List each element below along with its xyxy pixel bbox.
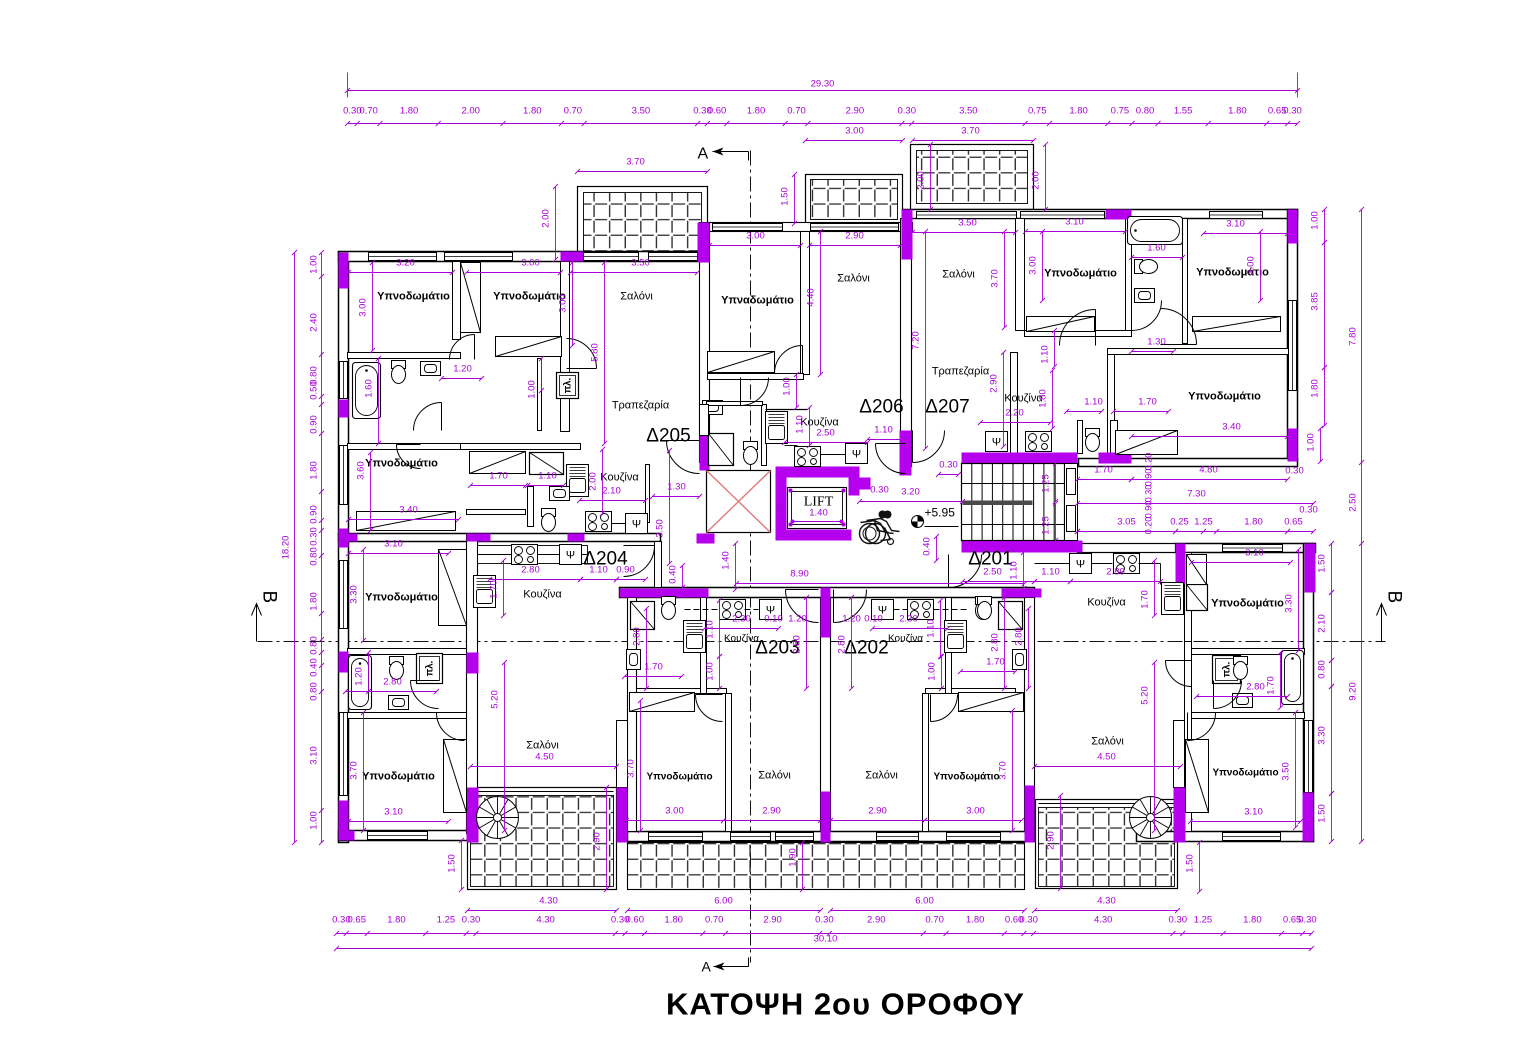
svg-text:0.90: 0.90 (1144, 469, 1154, 487)
svg-text:9.20: 9.20 (1348, 682, 1359, 701)
svg-text:0.60: 0.60 (626, 915, 645, 926)
svg-text:3.00: 3.00 (1246, 256, 1257, 275)
svg-text:7.30: 7.30 (1187, 489, 1206, 500)
svg-text:Κουζίνα: Κουζίνα (888, 633, 923, 645)
svg-text:3.10: 3.10 (309, 746, 320, 765)
svg-text:1.55: 1.55 (1174, 106, 1193, 117)
svg-text:1.40: 1.40 (809, 508, 828, 519)
svg-text:Σαλόνι: Σαλόνι (758, 770, 791, 782)
svg-text:2.80: 2.80 (837, 635, 848, 654)
svg-text:0.70: 0.70 (787, 106, 806, 117)
svg-text:+5.95: +5.95 (925, 506, 956, 520)
svg-text:4.50: 4.50 (1097, 752, 1116, 763)
svg-text:1.70: 1.70 (1094, 465, 1113, 476)
svg-text:8.90: 8.90 (790, 569, 809, 580)
svg-text:B: B (1384, 591, 1405, 604)
svg-text:1.70: 1.70 (1138, 397, 1157, 408)
svg-text:3.50: 3.50 (959, 106, 978, 117)
svg-text:A: A (698, 146, 709, 163)
svg-text:0.10: 0.10 (864, 614, 883, 625)
svg-text:5.20: 5.20 (1140, 686, 1151, 705)
svg-text:1.25: 1.25 (1041, 474, 1052, 493)
svg-text:0.65: 0.65 (1284, 517, 1303, 528)
svg-text:1.10: 1.10 (874, 425, 893, 436)
svg-text:1.50: 1.50 (780, 187, 791, 206)
svg-text:1.10: 1.10 (1041, 567, 1060, 578)
svg-text:2.50: 2.50 (983, 567, 1002, 578)
svg-text:2.00: 2.00 (588, 472, 599, 491)
svg-text:3.00: 3.00 (746, 231, 765, 242)
svg-text:Κουζίνα: Κουζίνα (523, 589, 562, 601)
svg-text:3.00: 3.00 (358, 298, 369, 317)
svg-text:Υπνοδωμάτιο: Υπνοδωμάτιο (362, 771, 435, 783)
svg-text:18.20: 18.20 (281, 536, 292, 560)
svg-text:0.30: 0.30 (462, 915, 481, 926)
svg-text:1.30: 1.30 (1147, 337, 1166, 348)
svg-text:0.90: 0.90 (309, 415, 320, 434)
svg-text:1.00: 1.00 (927, 662, 938, 681)
svg-text:0.80: 0.80 (309, 636, 320, 655)
svg-text:Ψ: Ψ (992, 437, 1001, 449)
svg-text:1.80: 1.80 (664, 915, 683, 926)
svg-text:2.20: 2.20 (1005, 408, 1024, 419)
svg-text:1.30: 1.30 (667, 482, 686, 493)
svg-text:3.50: 3.50 (632, 106, 651, 117)
svg-text:0.30: 0.30 (1019, 915, 1038, 926)
svg-text:1.10: 1.10 (538, 471, 557, 482)
svg-text:3.70: 3.70 (990, 269, 1001, 288)
svg-text:0.30: 0.30 (309, 527, 320, 546)
svg-text:3.30: 3.30 (349, 585, 360, 604)
svg-text:0.75: 0.75 (1028, 106, 1047, 117)
svg-text:3.00: 3.00 (558, 294, 569, 313)
svg-text:2.80: 2.80 (1014, 627, 1025, 646)
svg-text:Δ207: Δ207 (925, 397, 969, 418)
svg-text:1.10: 1.10 (1040, 345, 1051, 364)
svg-text:3.10: 3.10 (384, 807, 403, 818)
svg-text:0.90: 0.90 (1144, 501, 1154, 519)
svg-text:2.30: 2.30 (732, 614, 751, 625)
svg-text:Κουζίνα: Κουζίνα (600, 472, 639, 484)
svg-text:Σαλόνι: Σαλόνι (526, 740, 559, 752)
svg-text:1.50: 1.50 (1185, 854, 1196, 873)
svg-text:2.90: 2.90 (846, 106, 865, 117)
svg-text:ΚΑΤΟΨΗ 2ου ΟΡΟΦΟΥ: ΚΑΤΟΨΗ 2ου ΟΡΟΦΟΥ (666, 987, 1025, 1022)
svg-text:0.90: 0.90 (309, 505, 320, 524)
svg-text:5.20: 5.20 (490, 690, 501, 709)
svg-text:0.30: 0.30 (870, 485, 889, 496)
svg-text:Υπνοδωμάτιο: Υπνοδωμάτιο (1211, 598, 1284, 610)
svg-text:1.00: 1.00 (1306, 433, 1317, 452)
svg-text:Κουζίνα: Κουζίνα (1087, 597, 1126, 609)
svg-text:6.00: 6.00 (915, 896, 934, 907)
svg-text:3.05: 3.05 (1117, 517, 1136, 528)
svg-text:3.40: 3.40 (1222, 422, 1241, 433)
svg-text:4.80: 4.80 (1199, 465, 1218, 476)
svg-text:1.10: 1.10 (926, 619, 937, 638)
svg-text:0.75: 0.75 (1111, 106, 1130, 117)
svg-text:Σαλόνι: Σαλόνι (837, 273, 870, 285)
svg-text:4.30: 4.30 (539, 896, 558, 907)
svg-text:Υπναδωμάτιο: Υπναδωμάτιο (721, 295, 794, 307)
svg-text:7.20: 7.20 (911, 331, 922, 350)
svg-text:0.30: 0.30 (1285, 466, 1304, 477)
svg-text:2.00: 2.00 (1031, 171, 1042, 190)
svg-text:1.60: 1.60 (364, 379, 375, 398)
svg-text:Υπνοδωμάτιο: Υπνοδωμάτιο (493, 291, 566, 303)
svg-text:0.70: 0.70 (359, 106, 378, 117)
svg-text:1.25: 1.25 (1194, 915, 1213, 926)
svg-text:2.80: 2.80 (1246, 682, 1265, 693)
svg-text:Ψ: Ψ (566, 550, 575, 562)
svg-text:1.80: 1.80 (747, 106, 766, 117)
svg-text:2.90: 2.90 (763, 915, 782, 926)
svg-text:1.80: 1.80 (1243, 915, 1262, 926)
svg-text:3.10: 3.10 (384, 539, 403, 550)
svg-text:2.90: 2.90 (868, 806, 887, 817)
svg-text:0.20: 0.20 (1144, 517, 1154, 535)
svg-text:Σαλόνι: Σαλόνι (1091, 736, 1124, 748)
svg-text:2.90: 2.90 (845, 231, 864, 242)
svg-text:3.40: 3.40 (399, 505, 418, 516)
svg-text:2.10: 2.10 (1317, 614, 1328, 633)
svg-text:Υπνοδωμάτιο: Υπνοδωμάτιο (1212, 768, 1278, 779)
svg-text:29.30: 29.30 (811, 79, 835, 90)
svg-text:0.30: 0.30 (1298, 915, 1317, 926)
svg-text:1.00: 1.00 (1310, 211, 1321, 230)
svg-text:1.70: 1.70 (1266, 676, 1277, 695)
svg-text:0.80: 0.80 (309, 547, 320, 566)
svg-text:0.25: 0.25 (1170, 517, 1189, 528)
svg-text:0.80: 0.80 (1136, 106, 1155, 117)
svg-text:3.70: 3.70 (349, 761, 360, 780)
svg-text:1.70: 1.70 (986, 657, 1005, 668)
svg-text:Κουζίνα: Κουζίνα (724, 633, 759, 645)
svg-text:1.70: 1.70 (489, 580, 500, 599)
svg-text:3.00: 3.00 (966, 806, 985, 817)
svg-text:2.00: 2.00 (461, 106, 480, 117)
svg-text:πλ.: πλ. (563, 377, 574, 393)
svg-text:Δ205: Δ205 (646, 426, 690, 447)
svg-text:3.70: 3.70 (626, 759, 637, 778)
svg-text:πλ.: πλ. (1222, 661, 1233, 677)
svg-text:2.50: 2.50 (816, 428, 835, 439)
svg-text:0.40: 0.40 (668, 565, 679, 584)
svg-text:2.90: 2.90 (592, 832, 603, 851)
svg-text:0.70: 0.70 (925, 915, 944, 926)
svg-text:4.30: 4.30 (1097, 896, 1116, 907)
svg-text:Υπνοδωμάτιο: Υπνοδωμάτιο (933, 772, 999, 783)
svg-text:2.00: 2.00 (916, 171, 927, 190)
svg-text:B: B (259, 591, 280, 604)
svg-text:1.70: 1.70 (644, 662, 663, 673)
svg-text:0.30: 0.30 (897, 106, 916, 117)
svg-text:1.25: 1.25 (437, 915, 456, 926)
svg-text:3.10: 3.10 (1244, 807, 1263, 818)
svg-text:1.00: 1.00 (782, 377, 793, 396)
svg-text:πλ.: πλ. (425, 660, 436, 676)
svg-text:2.30: 2.30 (899, 614, 918, 625)
svg-text:6.00: 6.00 (714, 896, 733, 907)
svg-text:2.40: 2.40 (309, 313, 320, 332)
svg-text:0.80: 0.80 (309, 682, 320, 701)
svg-text:1.50: 1.50 (1317, 554, 1328, 573)
svg-text:0.30: 0.30 (1144, 485, 1154, 503)
svg-text:3.20: 3.20 (396, 258, 415, 269)
svg-text:1.80: 1.80 (966, 915, 985, 926)
svg-text:1.80: 1.80 (309, 461, 320, 480)
svg-text:Σαλόνι: Σαλόνι (865, 770, 898, 782)
svg-text:2.90: 2.90 (989, 374, 1000, 393)
svg-text:Ψ: Ψ (632, 519, 641, 531)
svg-text:1.10: 1.10 (1009, 561, 1020, 580)
svg-text:2.80: 2.80 (521, 565, 540, 576)
svg-text:3.70: 3.70 (961, 126, 980, 137)
svg-text:3.70: 3.70 (626, 157, 645, 168)
svg-text:1.40: 1.40 (721, 551, 732, 570)
svg-text:0.65: 0.65 (348, 915, 367, 926)
svg-text:1.80: 1.80 (523, 106, 542, 117)
svg-text:3.50: 3.50 (631, 258, 650, 269)
svg-text:Υπνοδωμάτιο: Υπνοδωμάτιο (1188, 391, 1261, 403)
svg-text:2.50: 2.50 (1348, 493, 1359, 512)
svg-text:1.20: 1.20 (354, 667, 365, 686)
svg-text:7.80: 7.80 (1348, 327, 1359, 346)
svg-text:1.10: 1.10 (775, 503, 786, 522)
svg-text:1.80: 1.80 (400, 106, 419, 117)
svg-text:Υπνοδωμάτιο: Υπνοδωμάτιο (365, 592, 438, 604)
svg-text:2.90: 2.90 (867, 915, 886, 926)
svg-text:1.00: 1.00 (527, 380, 538, 399)
svg-text:3.60: 3.60 (356, 461, 367, 480)
svg-text:1.25: 1.25 (1194, 517, 1213, 528)
svg-text:1.50: 1.50 (447, 854, 458, 873)
svg-text:1.10: 1.10 (705, 620, 716, 639)
svg-text:3.70: 3.70 (998, 761, 1009, 780)
svg-text:2.10: 2.10 (602, 486, 621, 497)
svg-text:1.10: 1.10 (1084, 397, 1103, 408)
svg-text:2.80: 2.80 (1106, 567, 1125, 578)
svg-text:2.80: 2.80 (990, 633, 1001, 652)
svg-text:A: A (702, 959, 712, 975)
svg-text:1.80: 1.80 (1244, 517, 1263, 528)
svg-text:1.20: 1.20 (453, 364, 472, 375)
svg-text:4.30: 4.30 (536, 915, 555, 926)
svg-text:Ψ: Ψ (852, 449, 861, 461)
svg-text:2.80: 2.80 (632, 627, 643, 646)
svg-text:2.80: 2.80 (383, 677, 402, 688)
svg-text:4.50: 4.50 (535, 752, 554, 763)
svg-text:Ψ: Ψ (1076, 559, 1085, 571)
svg-text:1.00: 1.00 (309, 811, 320, 830)
svg-text:1.50: 1.50 (1317, 804, 1328, 823)
svg-text:Δ206: Δ206 (859, 397, 903, 418)
svg-text:Υπνοδωμάτιο: Υπνοδωμάτιο (377, 291, 450, 303)
svg-text:1.10: 1.10 (589, 565, 608, 576)
svg-text:0.50: 0.50 (309, 381, 320, 400)
svg-text:1.00: 1.00 (309, 255, 320, 274)
svg-text:0.60: 0.60 (708, 106, 727, 117)
svg-text:Σαλόνι: Σαλόνι (620, 291, 653, 303)
svg-text:3.10: 3.10 (1245, 548, 1264, 559)
svg-text:0.10: 0.10 (764, 614, 783, 625)
svg-text:1.10: 1.10 (795, 415, 806, 434)
svg-text:3.00: 3.00 (1028, 256, 1039, 275)
svg-text:3.10: 3.10 (1226, 219, 1245, 230)
svg-text:1.20: 1.20 (788, 614, 807, 625)
svg-text:5.80: 5.80 (590, 343, 601, 362)
svg-text:Υπνοδωμάτιο: Υπνοδωμάτιο (1044, 268, 1117, 280)
svg-text:2.90: 2.90 (1046, 831, 1057, 850)
svg-text:3.50: 3.50 (958, 218, 977, 229)
svg-text:1.60: 1.60 (1147, 243, 1166, 254)
svg-text:3.85: 3.85 (1310, 292, 1321, 311)
svg-text:1.80: 1.80 (1038, 389, 1049, 408)
svg-text:3.20: 3.20 (901, 487, 920, 498)
svg-text:0.80: 0.80 (1317, 660, 1328, 679)
svg-text:0.40: 0.40 (922, 537, 933, 556)
svg-text:0.40: 0.40 (309, 658, 320, 677)
svg-text:0.20: 0.20 (1144, 453, 1154, 471)
svg-text:1.80: 1.80 (1310, 379, 1321, 398)
svg-text:1.80: 1.80 (1228, 106, 1247, 117)
svg-text:1.80: 1.80 (1069, 106, 1088, 117)
svg-text:3.00: 3.00 (521, 258, 540, 269)
svg-text:30.10: 30.10 (814, 934, 838, 945)
svg-text:1.25: 1.25 (1041, 516, 1052, 535)
svg-text:Υπνοδωμάτιο: Υπνοδωμάτιο (365, 458, 438, 470)
svg-text:0.30: 0.30 (1169, 915, 1188, 926)
svg-text:4.40: 4.40 (806, 288, 817, 307)
svg-text:2.00: 2.00 (541, 209, 552, 228)
svg-text:Υπνοδωμάτιο: Υπνοδωμάτιο (646, 772, 712, 783)
svg-text:2.80: 2.80 (792, 635, 803, 654)
svg-text:0.90: 0.90 (616, 565, 635, 576)
svg-text:3.00: 3.00 (665, 806, 684, 817)
svg-text:0.30: 0.30 (1283, 106, 1302, 117)
svg-text:1.70: 1.70 (489, 471, 508, 482)
svg-text:1.80: 1.80 (387, 915, 406, 926)
svg-text:0.30: 0.30 (1299, 505, 1318, 516)
svg-text:Υπνοδωμάτιο: Υπνοδωμάτιο (1196, 267, 1269, 279)
svg-text:4.30: 4.30 (1094, 915, 1113, 926)
svg-text:1.90: 1.90 (788, 848, 799, 867)
svg-text:Τραπεζαρία: Τραπεζαρία (612, 400, 670, 412)
svg-text:0.70: 0.70 (564, 106, 583, 117)
svg-text:Τραπεζαρία: Τραπεζαρία (932, 366, 990, 378)
svg-text:1.80: 1.80 (309, 592, 320, 611)
svg-text:0.30: 0.30 (815, 915, 834, 926)
svg-text:3.30: 3.30 (1317, 726, 1328, 745)
svg-text:3.00: 3.00 (845, 126, 864, 137)
svg-text:1.70: 1.70 (1140, 590, 1151, 609)
svg-text:Δ202: Δ202 (844, 638, 888, 659)
svg-text:Σαλόνι: Σαλόνι (942, 269, 975, 281)
svg-text:2.90: 2.90 (762, 806, 781, 817)
svg-text:3.10: 3.10 (1065, 217, 1084, 228)
svg-text:1.00: 1.00 (705, 662, 716, 681)
svg-text:3.50: 3.50 (1281, 762, 1292, 781)
svg-text:3.30: 3.30 (1284, 594, 1295, 613)
svg-text:0.30: 0.30 (939, 460, 958, 471)
svg-text:0.70: 0.70 (705, 915, 724, 926)
svg-text:3.50: 3.50 (655, 519, 666, 538)
